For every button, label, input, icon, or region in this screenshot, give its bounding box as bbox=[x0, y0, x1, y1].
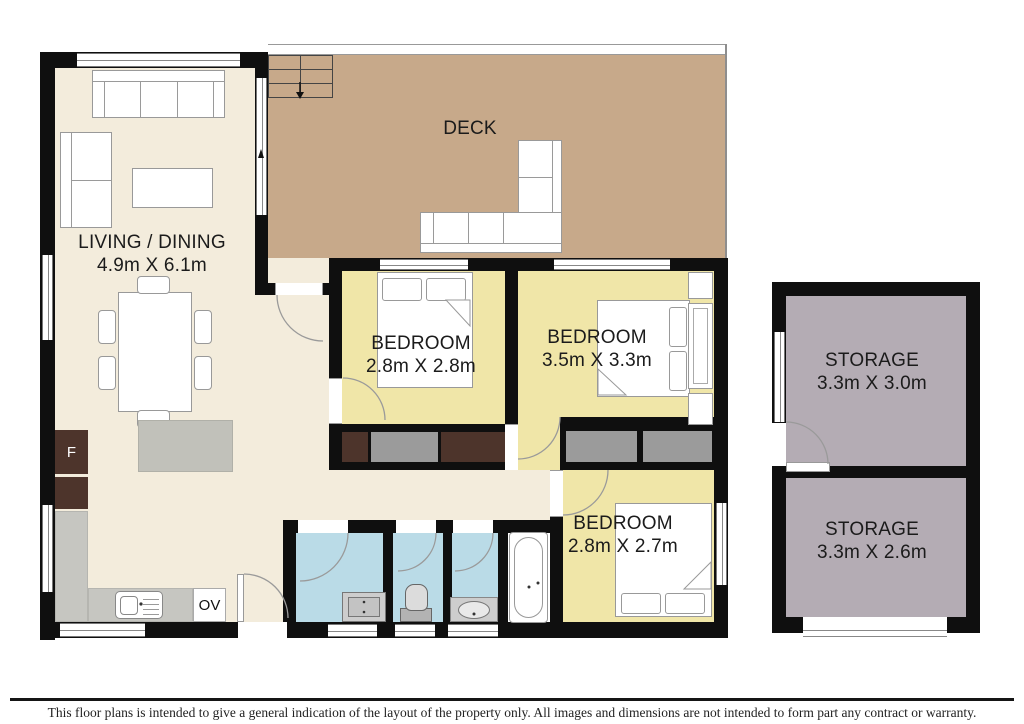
storage-garage-door bbox=[803, 630, 947, 637]
oven-label: OV bbox=[199, 597, 221, 614]
dining-table bbox=[118, 292, 192, 412]
disclaimer-text: This floor plans is intended to give a g… bbox=[0, 705, 1024, 721]
dining-chair bbox=[98, 356, 116, 390]
pillow bbox=[382, 278, 422, 301]
room-dims: 3.3m X 3.0m bbox=[782, 372, 962, 395]
bedroom2-closet-box bbox=[688, 393, 713, 425]
bedroom2-closet-box bbox=[688, 303, 713, 389]
window-bathroom1-bottom bbox=[328, 624, 377, 637]
oven: OV bbox=[193, 588, 226, 622]
room-dims: 2.8m X 2.8m bbox=[338, 355, 504, 378]
room-name: LIVING / DINING bbox=[57, 231, 247, 254]
room-dims: 4.9m X 6.1m bbox=[57, 254, 247, 277]
bathtub bbox=[509, 532, 548, 623]
window-bedroom1-top bbox=[380, 259, 468, 270]
storage1-label: STORAGE 3.3m X 3.0m bbox=[782, 349, 962, 395]
window-living-left bbox=[42, 255, 53, 340]
room-name: STORAGE bbox=[782, 349, 962, 372]
storage-door-leaf bbox=[786, 462, 830, 472]
fridge: F bbox=[55, 430, 88, 474]
room-dims: 3.5m X 3.3m bbox=[507, 349, 687, 372]
toilet-bowl bbox=[405, 584, 428, 611]
kitchen-counter-left bbox=[55, 511, 88, 622]
room-name: BEDROOM bbox=[338, 332, 504, 355]
storage-wall-right bbox=[966, 282, 980, 633]
dining-chair bbox=[137, 276, 170, 294]
dining-chair bbox=[98, 310, 116, 344]
bathroom3-door-opening bbox=[453, 520, 493, 533]
bedroom2-wardrobe-gray bbox=[566, 431, 637, 462]
bedroom2-closet-box bbox=[688, 272, 713, 299]
bedroom3-label: BEDROOM 2.8m X 2.7m bbox=[548, 512, 698, 558]
sliding-door-living-deck bbox=[256, 78, 267, 215]
pillow bbox=[665, 593, 705, 614]
bathroom1-vanity bbox=[342, 592, 386, 622]
storage2-label: STORAGE 3.3m X 2.6m bbox=[782, 518, 962, 564]
window-bedroom3-right bbox=[716, 503, 727, 585]
pillow bbox=[621, 593, 661, 614]
room-dims: 3.3m X 2.6m bbox=[782, 541, 962, 564]
bedroom1-label: BEDROOM 2.8m X 2.8m bbox=[338, 332, 504, 378]
entry-door-opening bbox=[238, 622, 287, 638]
sofa-top bbox=[92, 70, 225, 118]
pantry-cabinet bbox=[55, 477, 88, 509]
bedroom2-door-jamb bbox=[505, 424, 518, 470]
entry-door-leaf bbox=[237, 574, 244, 622]
kitchen-sink bbox=[115, 591, 163, 619]
window-bathroom2-bottom bbox=[395, 624, 435, 637]
bedroom1-wardrobe-gray bbox=[371, 432, 438, 462]
sofa-left bbox=[60, 132, 112, 228]
room-dims: 2.8m X 2.7m bbox=[548, 535, 698, 558]
bedroom1-door-opening bbox=[329, 378, 342, 424]
coffee-table bbox=[132, 168, 213, 208]
footer-divider bbox=[10, 698, 1014, 701]
bedroom1-wardrobe-dark bbox=[441, 432, 505, 462]
bathroom1-door-opening bbox=[298, 520, 348, 533]
wall-bath3-tub-divider bbox=[498, 520, 508, 638]
room-name: BEDROOM bbox=[507, 326, 687, 349]
deck-rail-top bbox=[268, 44, 726, 55]
dining-chair bbox=[194, 356, 212, 390]
deck-label: DECK bbox=[400, 117, 540, 140]
window-kitchen-bottom bbox=[60, 623, 145, 637]
bedroom2-wardrobe-gray bbox=[643, 431, 712, 462]
room-name: STORAGE bbox=[782, 518, 962, 541]
deck-hall-door-opening bbox=[275, 283, 323, 295]
living-label: LIVING / DINING 4.9m X 6.1m bbox=[57, 231, 247, 277]
pillow bbox=[426, 278, 466, 301]
storage-wall-top bbox=[772, 282, 980, 296]
basin bbox=[458, 601, 490, 619]
storage-door-opening bbox=[772, 423, 786, 466]
kitchen-island bbox=[138, 420, 233, 472]
bathtub-inner bbox=[514, 537, 543, 618]
window-bathroom3-bottom bbox=[448, 624, 498, 637]
window-kitchen-left bbox=[42, 505, 53, 592]
deck-stairs bbox=[268, 55, 333, 98]
deck-edge-right bbox=[725, 44, 727, 258]
room-name: DECK bbox=[400, 117, 540, 140]
bathroom2-door-opening bbox=[396, 520, 436, 533]
window-bedroom2-top bbox=[554, 259, 670, 270]
bedroom3-door-opening bbox=[550, 470, 563, 517]
bathroom3-basin-counter bbox=[450, 597, 498, 622]
hallway-floor bbox=[343, 470, 563, 520]
dining-chair bbox=[194, 310, 212, 344]
bedroom2-door-nook-floor bbox=[518, 424, 560, 470]
room-name: BEDROOM bbox=[548, 512, 698, 535]
wall-bath-left bbox=[283, 520, 296, 638]
floor-plan: F OV bbox=[0, 0, 1024, 724]
deck-sofa-horizontal bbox=[420, 212, 562, 253]
bedroom1-wardrobe-dark bbox=[342, 432, 368, 462]
window-living-top bbox=[77, 53, 240, 67]
bedroom2-label: BEDROOM 3.5m X 3.3m bbox=[507, 326, 687, 372]
fridge-label: F bbox=[67, 444, 76, 461]
